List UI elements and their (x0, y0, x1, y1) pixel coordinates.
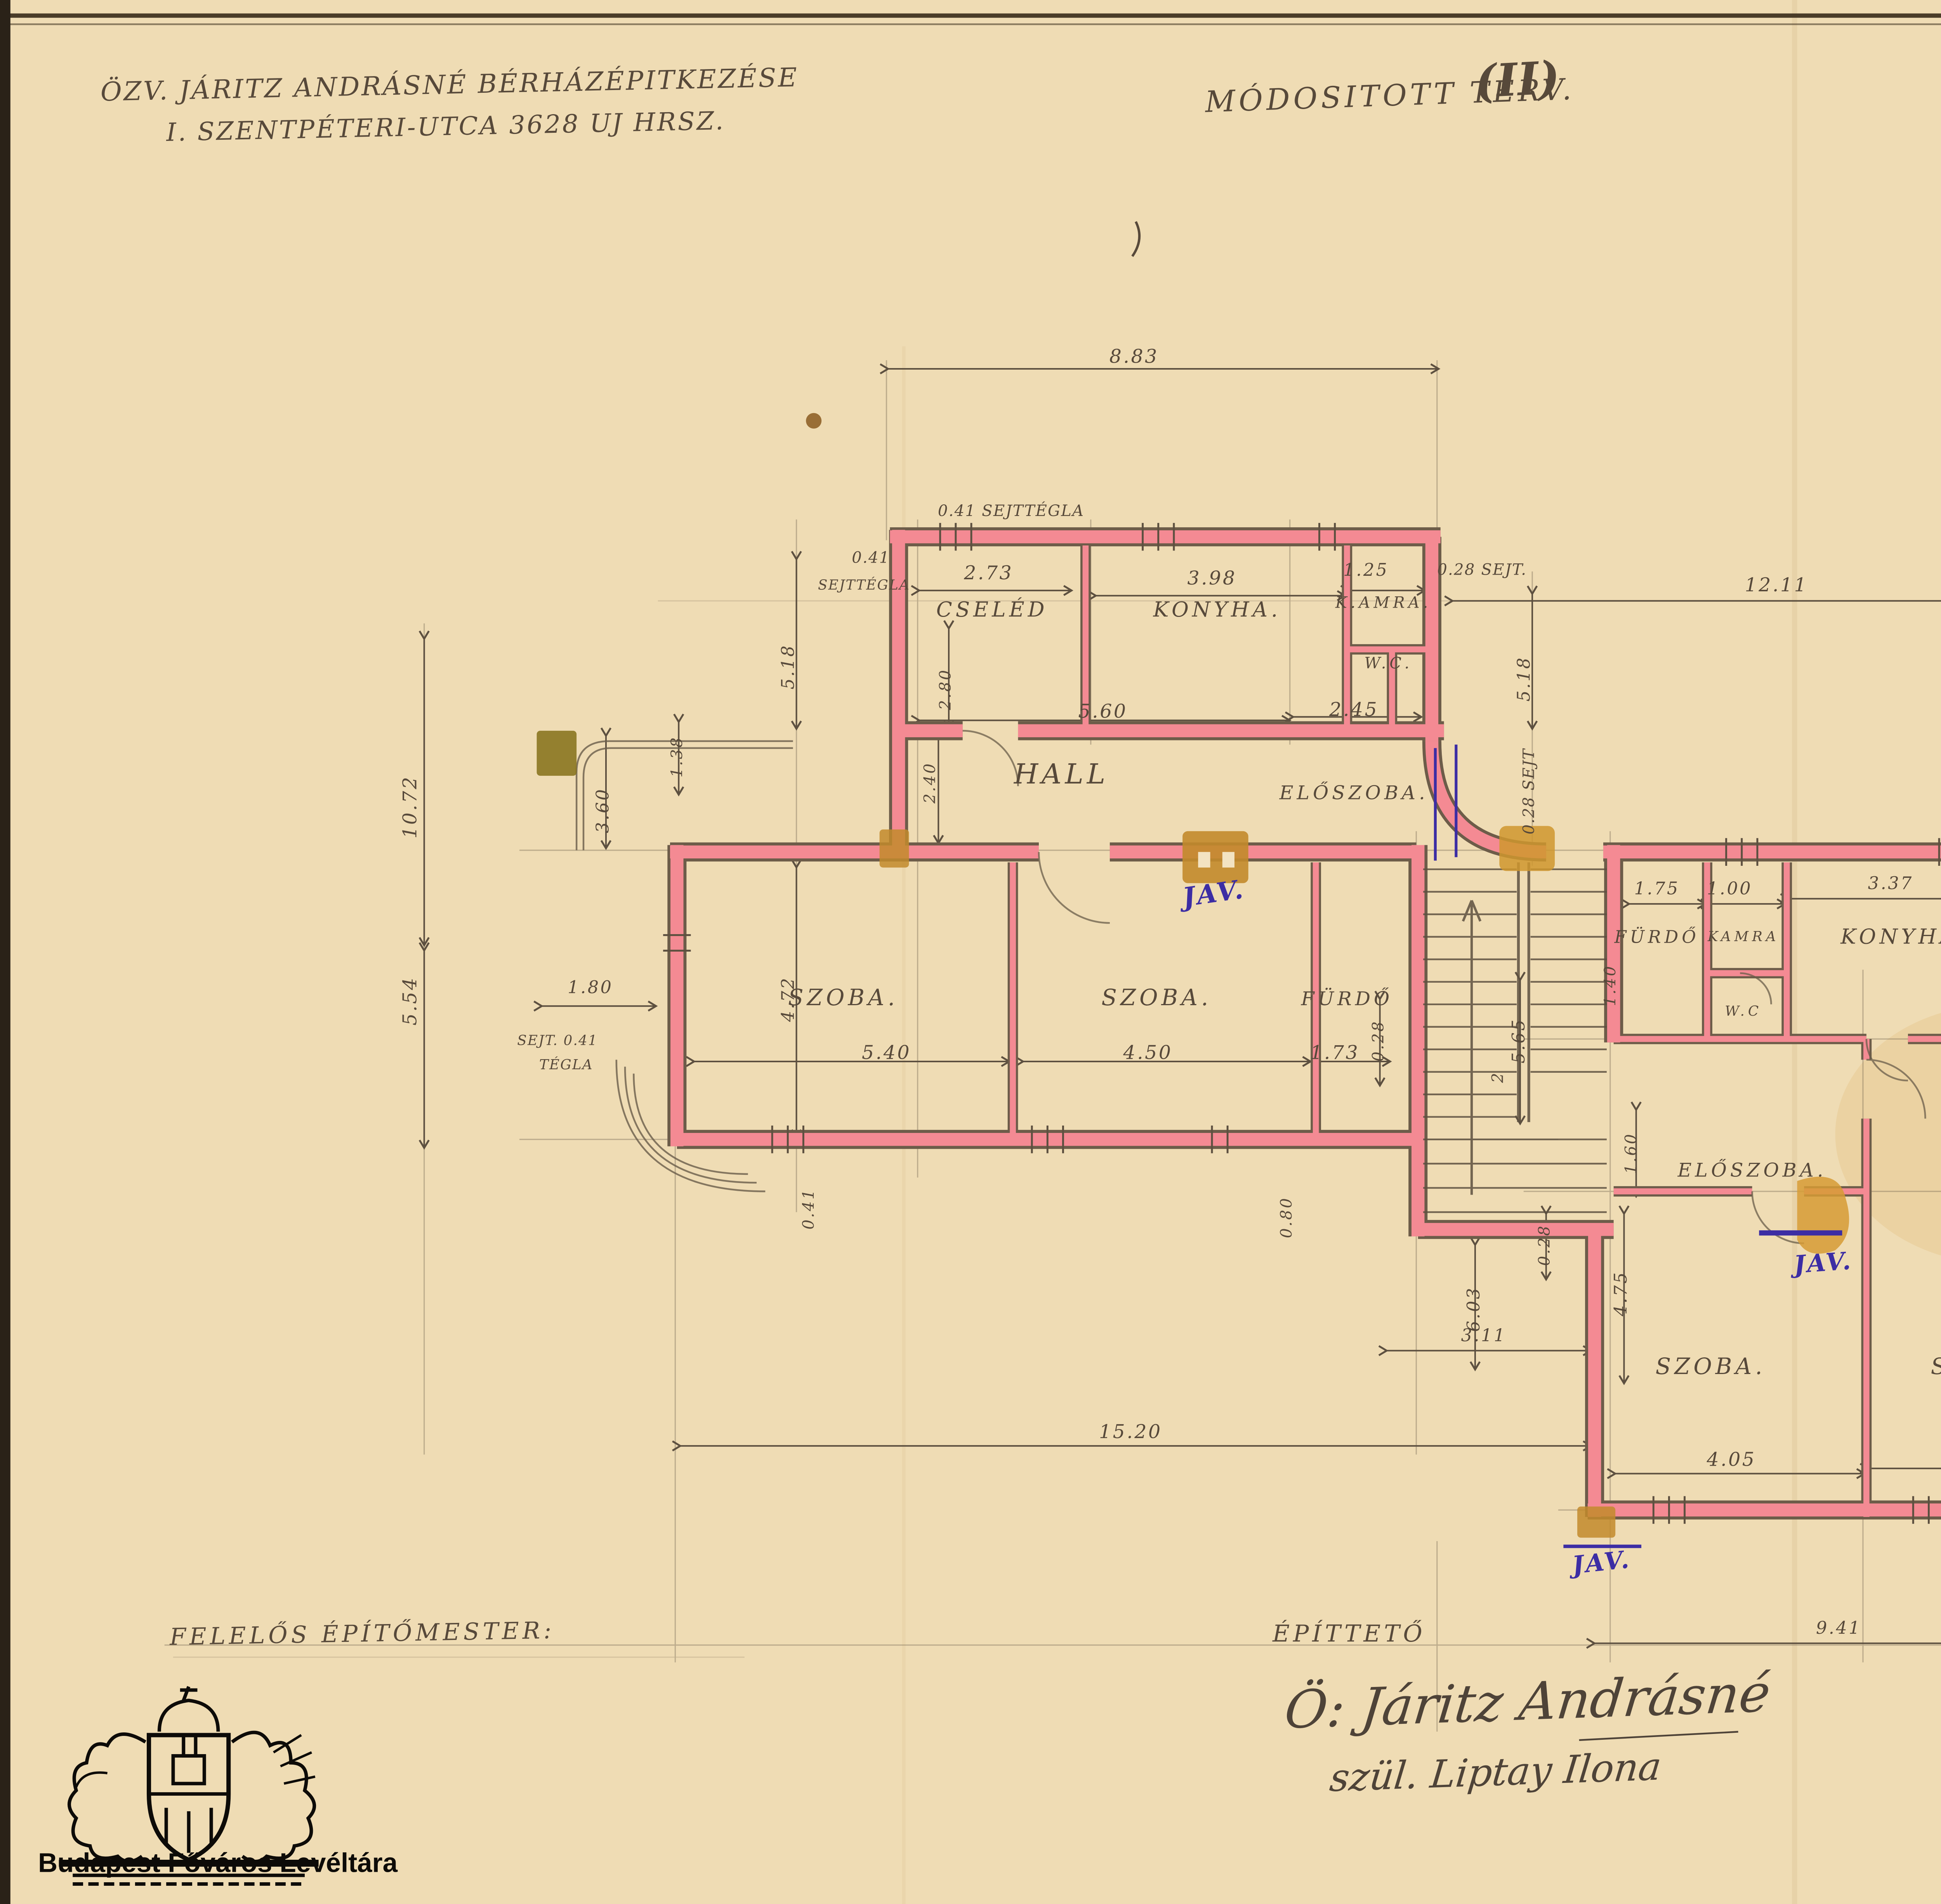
room-label: KAMRA (1708, 929, 1780, 945)
dimension-label: 0.28 (1537, 1224, 1555, 1266)
dimension-label: 1.75 (1634, 881, 1680, 900)
dimension-label: 3.98 (1187, 567, 1236, 590)
dimension-label: 12.11 (1745, 574, 1808, 596)
dimension-label: 15.20 (1099, 1421, 1162, 1443)
floor-plan-drawing (0, 0, 1941, 1904)
dimension-label: 5.54 (399, 976, 422, 1025)
archive-stamp-text: Budapest Főváros Levéltára (38, 1849, 398, 1880)
dimension-label: 9.41 (1816, 1620, 1861, 1639)
wall-note-label: 0.41 (852, 551, 890, 568)
dimension-label: 1.80 (568, 979, 613, 998)
wall-note-label: 0.28 SEJT (1522, 748, 1539, 834)
dimension-label: 10.72 (399, 775, 422, 839)
dimension-label: 5.18 (1516, 656, 1535, 702)
wall-note-label: TÉGLA (539, 1057, 593, 1073)
wall-note-label: SEJT. 0.41 (517, 1033, 598, 1048)
dimension-label: 0.28 (1371, 1020, 1389, 1061)
dimension-label: 2 (1491, 1071, 1508, 1083)
dimension-label: 3.60 (595, 788, 614, 833)
room-label: SZOBA. (1931, 1355, 1941, 1381)
room-label: ELŐSZOBA. (1678, 1159, 1827, 1182)
room-label: SZOBA. (788, 986, 898, 1012)
room-label: W.C. (1365, 656, 1413, 674)
dimension-label: 1.40 (1603, 964, 1621, 1006)
room-label: SZOBA. (1101, 986, 1212, 1012)
room-label: FÜRDŐ (1301, 988, 1393, 1010)
dimension-label: 1.73 (1310, 1042, 1359, 1064)
dimension-label: 5.65 (1510, 1018, 1530, 1063)
wall-note-label: 0.28 SEJT. (1437, 563, 1527, 580)
dimension-label: 3.37 (1868, 876, 1913, 895)
scanned-plan-sheet: ÖZV. JÁRITZ ANDRÁSNÉ BÉRHÁZÉPITKEZÉSE I.… (0, 0, 1941, 1904)
dimension-label: 4.72 (780, 976, 799, 1022)
dimension-label: 4.50 (1123, 1042, 1172, 1064)
room-label: SZOBA. (1655, 1355, 1766, 1381)
client-label: ÉPÍTTETŐ (1273, 1621, 1426, 1649)
room-label: HALL (1014, 757, 1109, 790)
sheet-border (0, 0, 1941, 1904)
paper-stains (806, 0, 1941, 1904)
room-label: KONYHA. (1840, 925, 1941, 949)
terrace-outlines (576, 741, 1941, 1628)
dimension-label: 8.83 (1109, 346, 1159, 368)
dimension-label: 4.75 (1613, 1271, 1632, 1316)
dimension-label: 0.41 (802, 1188, 819, 1229)
drawing-sheet: ÖZV. JÁRITZ ANDRÁSNÉ BÉRHÁZÉPITKEZÉSE I.… (0, 0, 1941, 1904)
dimension-label: 4.05 (1707, 1449, 1756, 1471)
wall-note-label: SEJTTÉGLA (818, 577, 910, 593)
dimension-label: 1.38 (670, 736, 688, 777)
dimension-label: 1.60 (1624, 1133, 1641, 1174)
dimension-label: 5.18 (780, 644, 799, 690)
correction-note: JAV. (1793, 1248, 1853, 1280)
room-label: CSELÉD (936, 598, 1048, 622)
room-label: KONYHA. (1153, 598, 1281, 622)
wall-note-label: 0.41 SEJTTÉGLA (938, 504, 1085, 521)
dimension-label: 2.45 (1329, 699, 1378, 721)
room-label: W.C (1725, 1004, 1762, 1019)
dimension-label: 6.03 (1465, 1286, 1484, 1332)
dimension-label: 1.25 (1343, 562, 1389, 581)
dimension-label: 2.73 (964, 562, 1013, 584)
dimension-label: 0.80 (1280, 1197, 1297, 1238)
dimension-label: 5.40 (862, 1042, 911, 1064)
room-label: K.AMRA. (1335, 596, 1431, 613)
room-label: ELŐSZOBA. (1280, 782, 1429, 804)
dimension-label: 2.80 (938, 668, 956, 710)
dimension-label: 5.60 (1078, 700, 1127, 723)
extension-lines (165, 360, 1941, 1732)
plan-type-number: (II) (1474, 53, 1561, 109)
room-label: FÜRDŐ (1615, 929, 1700, 948)
dimension-label: 2.40 (923, 762, 940, 803)
dimension-label: 1.00 (1707, 881, 1752, 900)
